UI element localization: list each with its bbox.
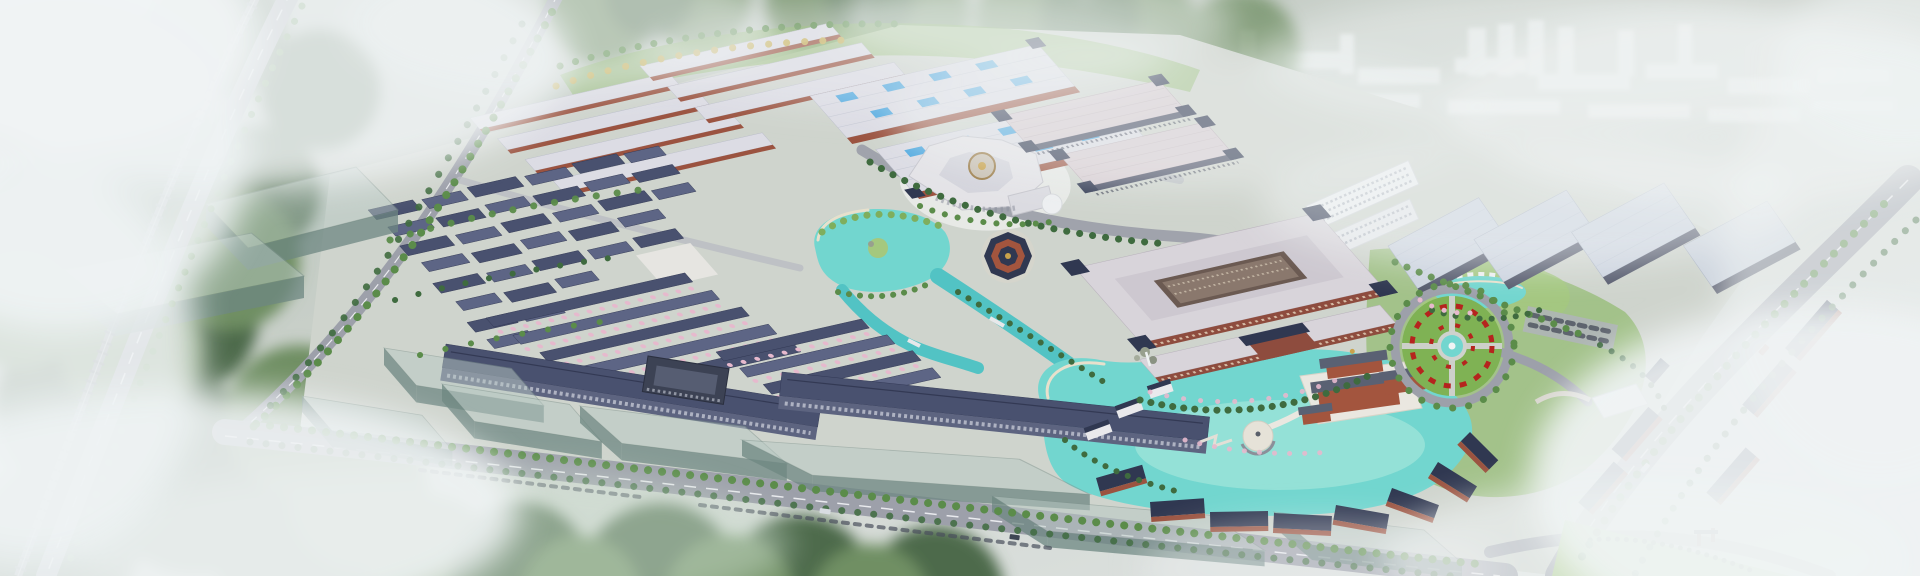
- aerial-site-rendering: [0, 0, 1920, 576]
- dome-pavilion: [1042, 194, 1062, 214]
- pagoda-tower: [981, 229, 1035, 283]
- screenshot-canvas: [0, 0, 1920, 576]
- monument-peninsula: [1242, 421, 1274, 454]
- fountain-plaza: [1395, 289, 1509, 403]
